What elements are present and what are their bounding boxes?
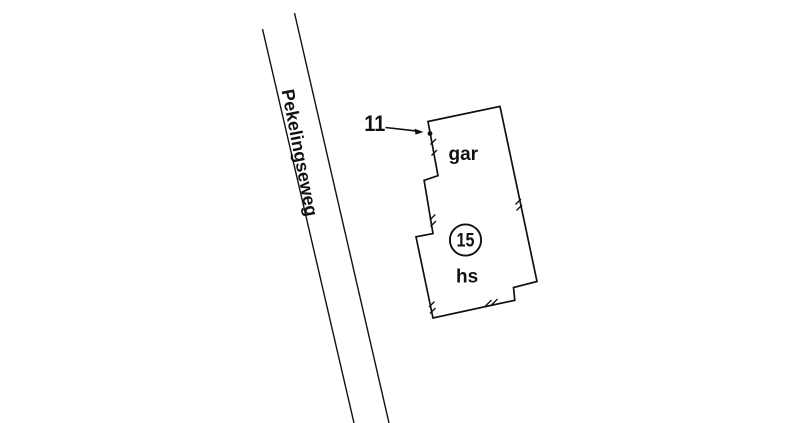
- svg-text:Pekelingseweg: Pekelingseweg: [278, 87, 322, 218]
- svg-text:15: 15: [457, 229, 475, 251]
- svg-text:11: 11: [364, 112, 385, 136]
- svg-text:hs: hs: [456, 266, 478, 287]
- svg-text:gar: gar: [449, 144, 479, 165]
